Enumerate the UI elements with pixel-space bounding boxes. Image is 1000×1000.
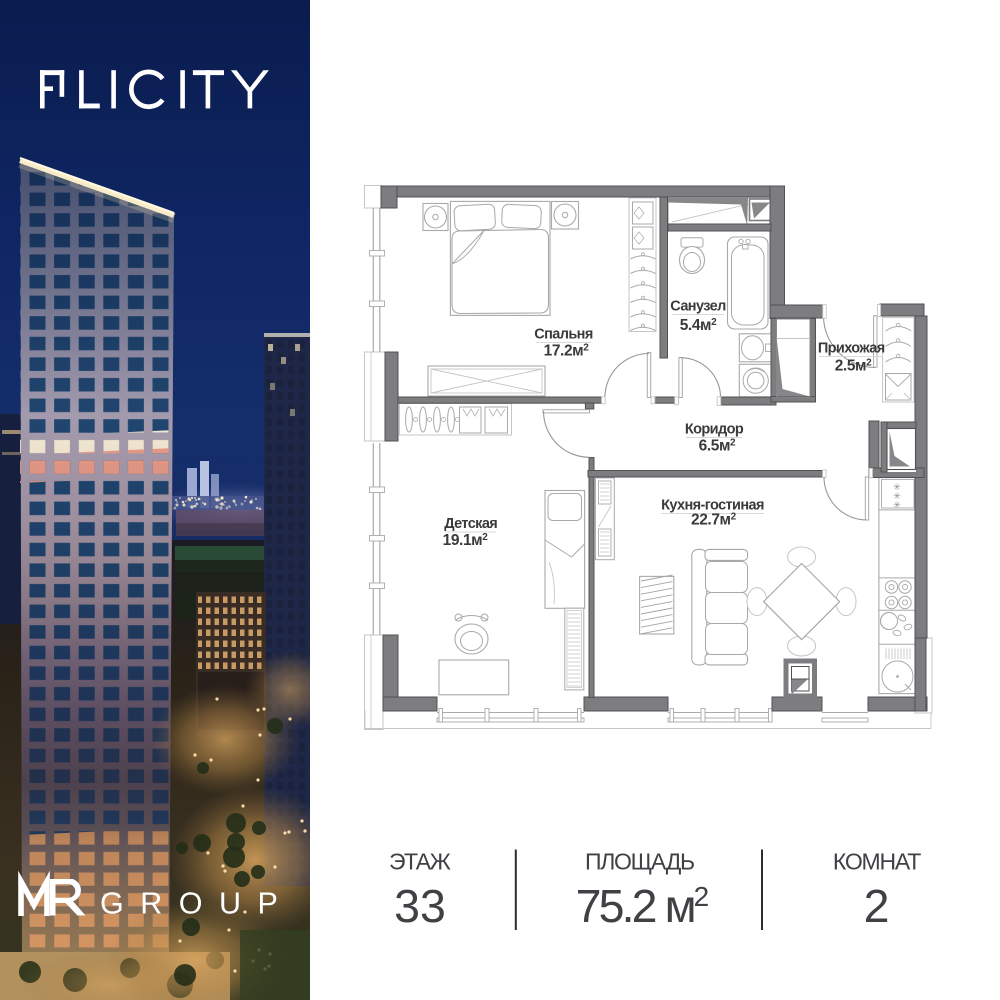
svg-text:2.5м2: 2.5м2 bbox=[835, 358, 872, 375]
svg-text:Коридор: Коридор bbox=[685, 422, 744, 438]
svg-text:ЭТАЖ: ЭТАЖ bbox=[389, 849, 451, 875]
svg-text:6.5м2: 6.5м2 bbox=[699, 438, 736, 455]
svg-text:5.4м2: 5.4м2 bbox=[680, 317, 717, 334]
svg-text:Детская: Детская bbox=[444, 516, 497, 532]
svg-text:33: 33 bbox=[394, 880, 446, 932]
svg-text:17.2м2: 17.2м2 bbox=[544, 343, 590, 360]
svg-text:✳: ✳ bbox=[893, 500, 901, 510]
svg-text:КОМНАТ: КОМНАТ bbox=[833, 849, 921, 875]
svg-text:GROUP: GROUP bbox=[100, 887, 294, 921]
svg-text:Прихожая: Прихожая bbox=[818, 341, 885, 357]
svg-text:19.1м2: 19.1м2 bbox=[443, 532, 489, 549]
svg-text:Спальня: Спальня bbox=[534, 327, 593, 343]
svg-text:2: 2 bbox=[864, 880, 890, 932]
svg-text:ПЛОЩАДЬ: ПЛОЩАДЬ bbox=[585, 849, 694, 875]
svg-text:Санузел: Санузел bbox=[670, 299, 726, 315]
svg-text:75.2 м2: 75.2 м2 bbox=[576, 880, 709, 932]
svg-text:22.7м2: 22.7м2 bbox=[691, 512, 737, 529]
